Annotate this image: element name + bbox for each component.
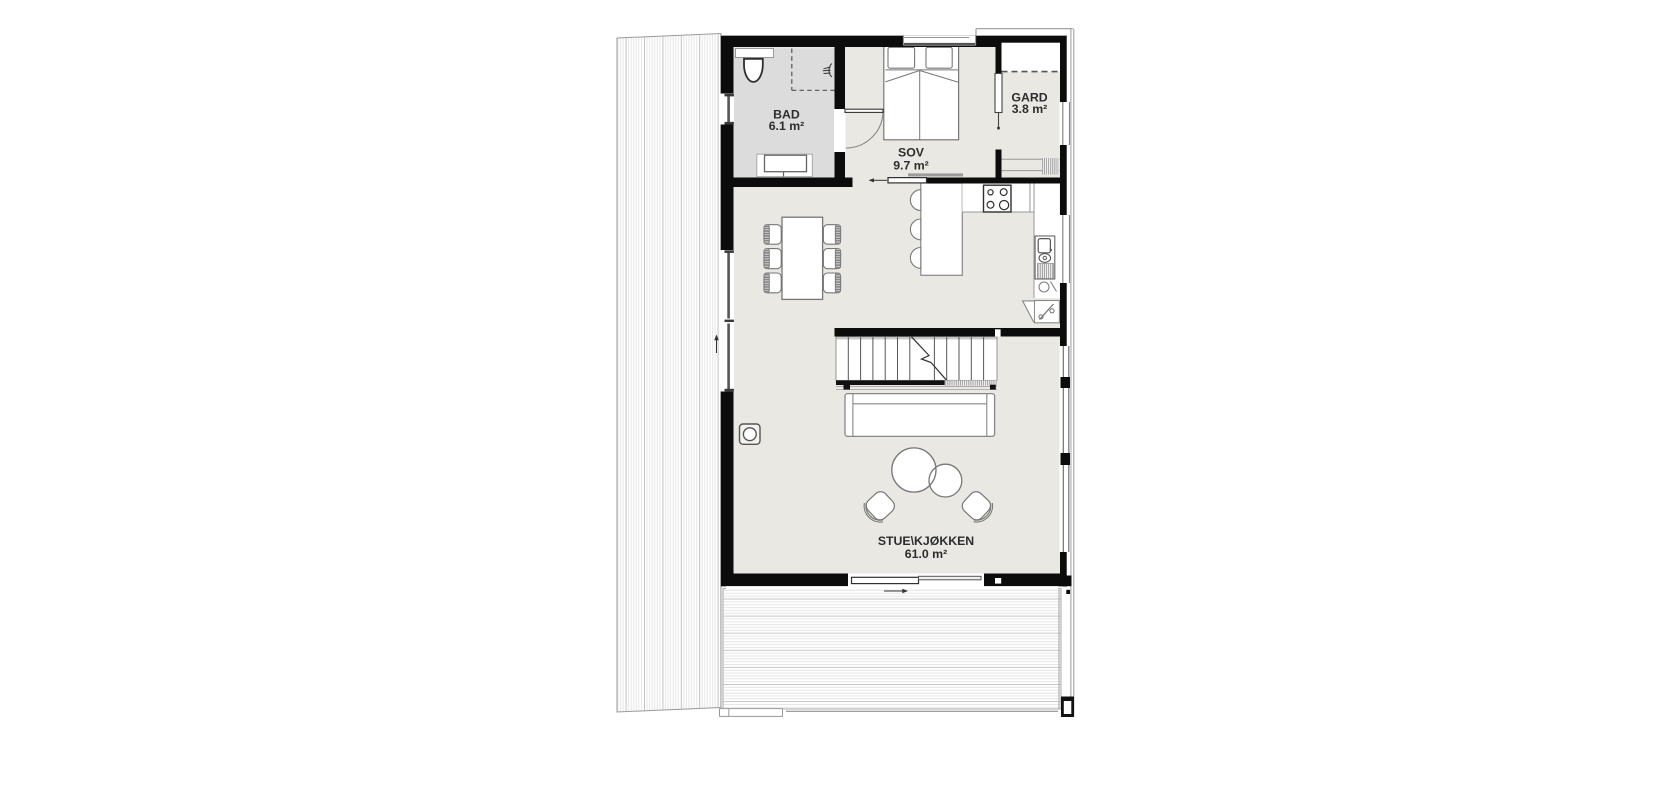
svg-text:9.7 m²: 9.7 m² [893,159,929,173]
svg-text:SOV: SOV [898,146,925,160]
svg-text:61.0 m²: 61.0 m² [905,547,947,561]
svg-text:6.1 m²: 6.1 m² [769,119,805,133]
svg-text:STUE\KJØKKEN: STUE\KJØKKEN [878,534,974,548]
svg-text:3.8 m²: 3.8 m² [1012,102,1048,116]
